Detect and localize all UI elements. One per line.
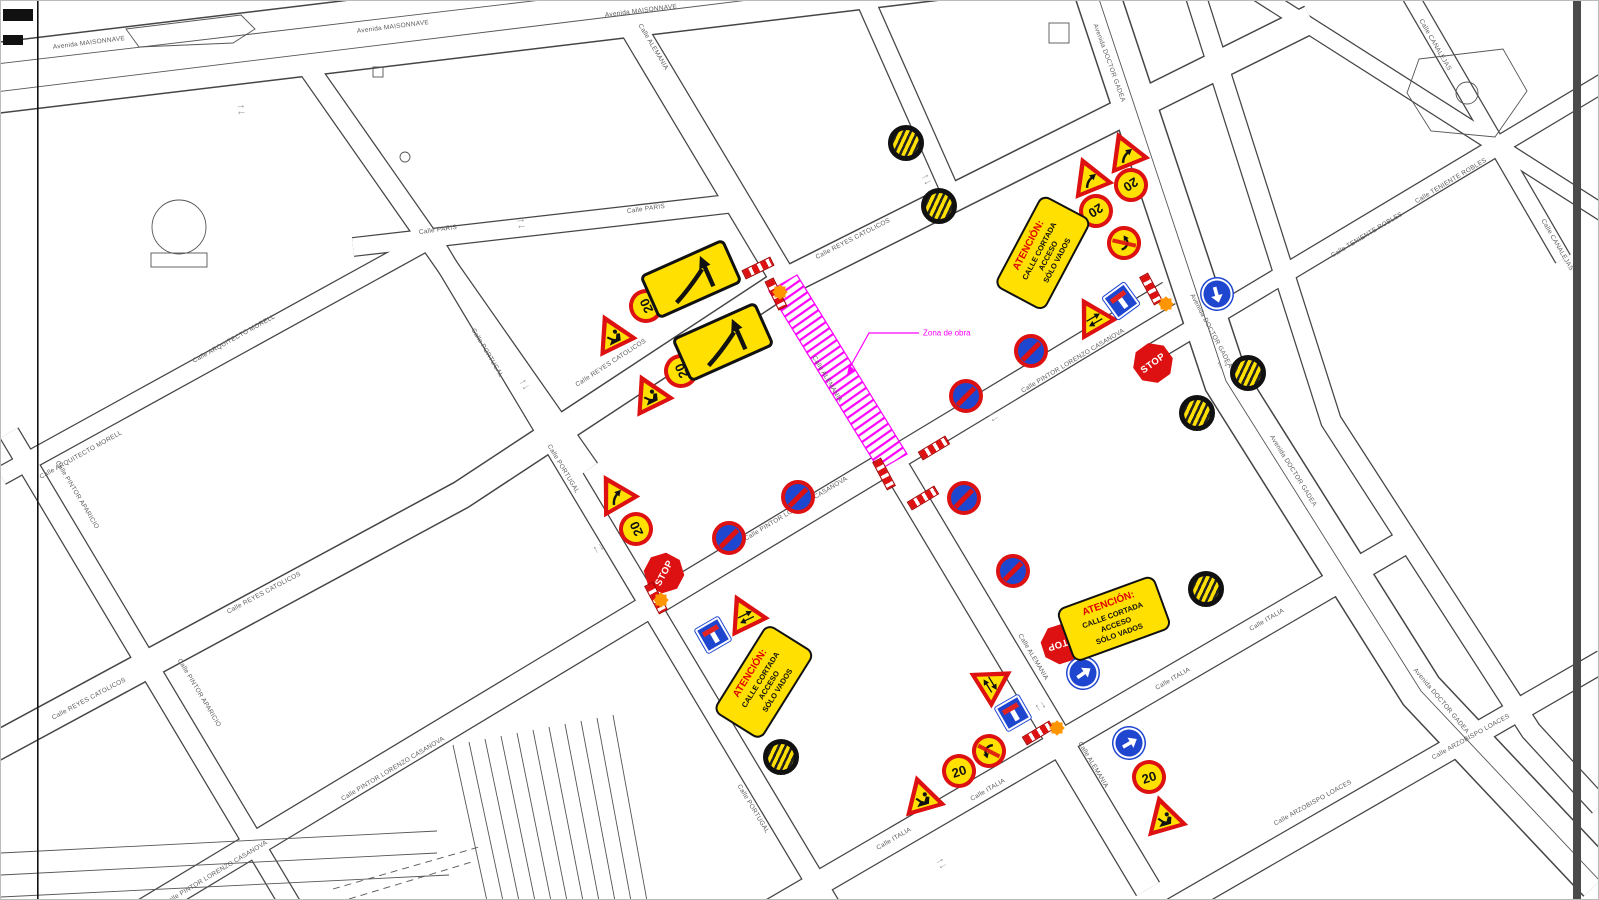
attention-street-closed-panel: ATENCIÓN:CALLE CORTADAACCESOSÓLO VADOS	[993, 194, 1092, 313]
attention-street-closed-panel: ATENCIÓN:CALLE CORTADAACCESOSÓLO VADOS	[1055, 574, 1172, 663]
work-zone-label: Zona de obra	[923, 329, 971, 338]
attention-street-closed-panel: ATENCIÓN:CALLE CORTADAACCESOSÓLO VADOS	[712, 623, 816, 742]
traffic-works-plan-canvas: Avenida MAISONNAVEAvenida MAISONNAVEAven…	[0, 0, 1599, 900]
warning-panels-layer: ATENCIÓN:CALLE CORTADAACCESOSÓLO VADOSAT…	[1, 1, 1598, 899]
